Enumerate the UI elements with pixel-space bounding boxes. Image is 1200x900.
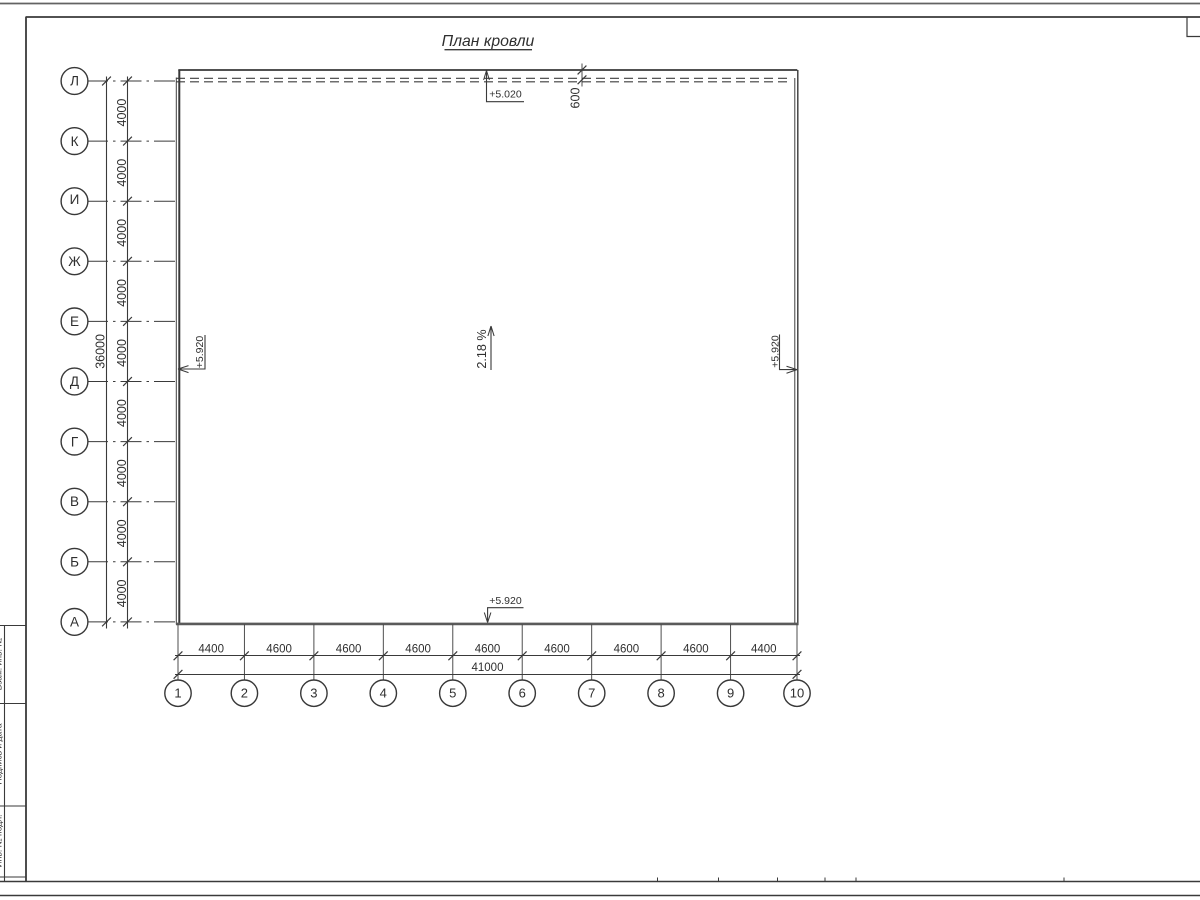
svg-text:К: К: [71, 134, 79, 149]
svg-text:Л: Л: [70, 74, 79, 89]
svg-text:Е: Е: [70, 314, 79, 329]
svg-text:4600: 4600: [405, 643, 431, 655]
svg-text:Д: Д: [70, 374, 79, 389]
svg-text:4600: 4600: [475, 643, 501, 655]
svg-text:4000: 4000: [115, 159, 129, 187]
svg-text:Взам. инв. №: Взам. инв. №: [0, 638, 4, 691]
svg-text:В: В: [70, 494, 79, 509]
svg-text:+5.920: +5.920: [489, 595, 522, 607]
svg-text:600: 600: [568, 88, 582, 109]
svg-text:4000: 4000: [115, 579, 129, 607]
svg-text:5: 5: [449, 686, 456, 701]
svg-text:Инв. № подл.: Инв. № подл.: [0, 815, 4, 868]
svg-text:2: 2: [241, 686, 248, 701]
svg-text:Подпись и дата: Подпись и дата: [0, 723, 4, 784]
svg-text:Г: Г: [71, 434, 79, 449]
svg-text:4000: 4000: [115, 339, 129, 367]
svg-text:3: 3: [310, 686, 317, 701]
svg-text:7: 7: [588, 686, 595, 701]
svg-text:10: 10: [790, 686, 804, 701]
svg-text:36000: 36000: [93, 334, 107, 369]
svg-text:+5.920: +5.920: [770, 335, 782, 368]
svg-text:+5.920: +5.920: [194, 336, 206, 369]
svg-text:А: А: [70, 615, 79, 630]
svg-text:4000: 4000: [115, 279, 129, 307]
svg-text:9: 9: [727, 686, 734, 701]
svg-text:И: И: [70, 192, 80, 207]
svg-text:4600: 4600: [266, 643, 292, 655]
svg-text:41000: 41000: [472, 662, 504, 674]
svg-text:4000: 4000: [115, 459, 129, 487]
svg-text:План кровли: План кровли: [442, 33, 535, 50]
svg-text:4600: 4600: [614, 643, 640, 655]
svg-text:4400: 4400: [751, 643, 777, 655]
svg-text:4600: 4600: [544, 643, 570, 655]
svg-text:+5.020: +5.020: [489, 88, 522, 100]
svg-text:Б: Б: [70, 555, 79, 570]
svg-text:4600: 4600: [336, 643, 362, 655]
svg-text:6: 6: [519, 686, 526, 701]
svg-text:1: 1: [174, 686, 181, 701]
svg-text:4000: 4000: [115, 99, 129, 127]
svg-text:2.18 %: 2.18 %: [475, 329, 489, 368]
svg-text:8: 8: [657, 686, 664, 701]
svg-text:4000: 4000: [115, 519, 129, 547]
svg-text:4000: 4000: [115, 219, 129, 247]
svg-text:4600: 4600: [683, 643, 709, 655]
svg-text:Ж: Ж: [68, 254, 81, 269]
svg-text:4: 4: [380, 686, 387, 701]
svg-text:4400: 4400: [198, 643, 224, 655]
svg-text:4000: 4000: [115, 399, 129, 427]
